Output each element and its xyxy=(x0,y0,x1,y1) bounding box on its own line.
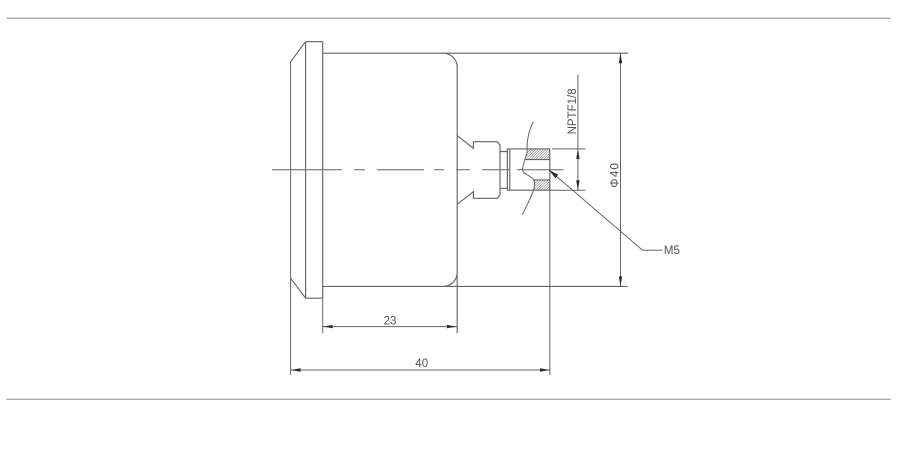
svg-text:40: 40 xyxy=(415,358,428,370)
svg-text:23: 23 xyxy=(384,316,397,328)
svg-text:Φ40: Φ40 xyxy=(609,162,621,188)
svg-text:M5: M5 xyxy=(664,245,680,257)
svg-text:NPTF1/8: NPTF1/8 xyxy=(567,88,579,134)
